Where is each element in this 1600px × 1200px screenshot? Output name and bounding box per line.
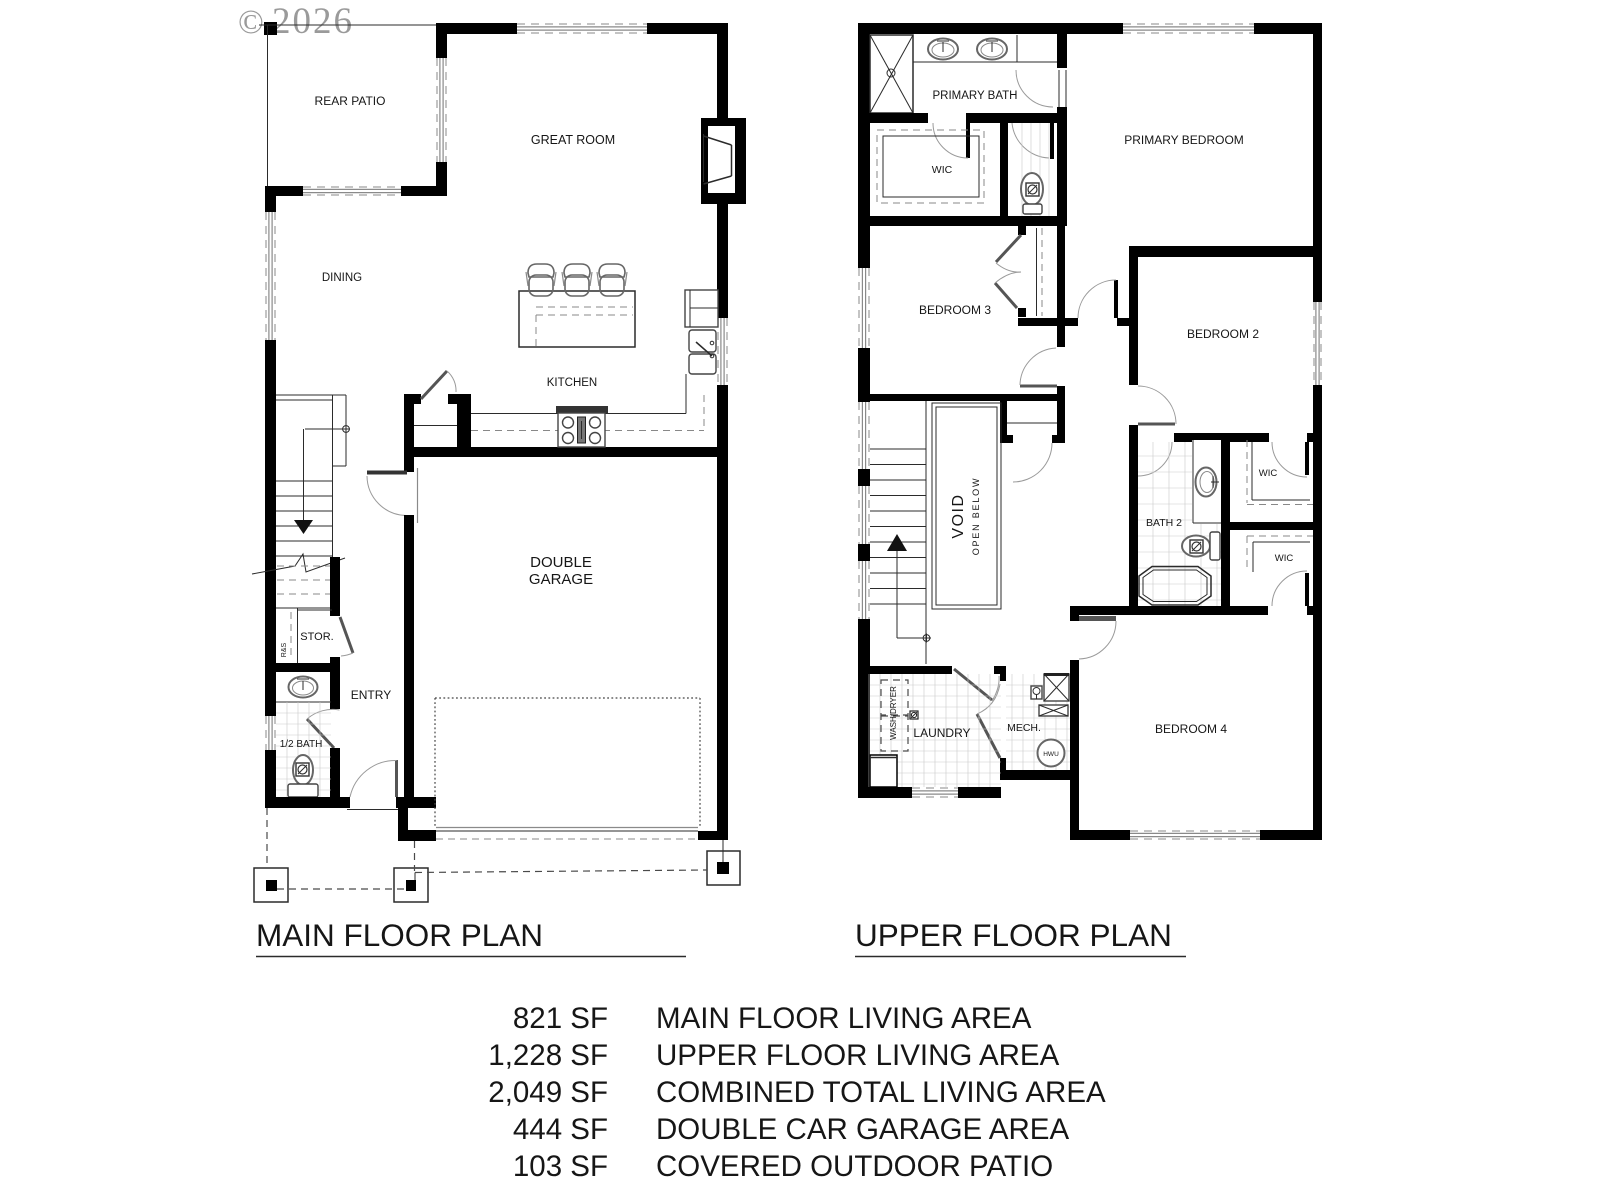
svg-text:BEDROOM 4: BEDROOM 4 [1155,722,1227,736]
svg-text:821 SF: 821 SF [513,1002,608,1035]
svg-text:GARAGE: GARAGE [529,571,593,588]
svg-text:DOUBLE CAR GARAGE AREA: DOUBLE CAR GARAGE AREA [656,1113,1069,1146]
svg-text:HWU: HWU [1043,751,1059,758]
svg-text:UPPER FLOOR PLAN: UPPER FLOOR PLAN [855,917,1172,953]
svg-text:OPEN BELOW: OPEN BELOW [971,477,981,556]
svg-text:REAR PATIO: REAR PATIO [315,94,386,108]
svg-text:PRIMARY BEDROOM: PRIMARY BEDROOM [1124,133,1244,147]
svg-text:2,049 SF: 2,049 SF [488,1076,608,1109]
svg-text:STOR.: STOR. [300,631,333,643]
svg-text:MAIN FLOOR LIVING AREA: MAIN FLOOR LIVING AREA [656,1002,1032,1035]
svg-text:ENTRY: ENTRY [351,688,391,702]
svg-text:COVERED OUTDOOR PATIO: COVERED OUTDOOR PATIO [656,1150,1053,1183]
svg-text:BEDROOM 3: BEDROOM 3 [919,303,991,317]
svg-text:DINING: DINING [322,272,362,284]
svg-text:WIC: WIC [932,164,953,176]
svg-text:DOUBLE: DOUBLE [530,554,592,571]
svg-text:LAUNDRY: LAUNDRY [913,726,970,740]
svg-text:WIC: WIC [1275,553,1294,564]
svg-text:1/2 BATH: 1/2 BATH [280,739,323,750]
svg-text:MECH.: MECH. [1007,722,1041,734]
svg-text:BATH 2: BATH 2 [1146,517,1182,529]
svg-text:R&S: R&S [281,642,288,657]
svg-text:VOID: VOID [950,493,967,538]
svg-text:UPPER FLOOR LIVING AREA: UPPER FLOOR LIVING AREA [656,1039,1060,1072]
svg-text:WASH/DRYER: WASH/DRYER [889,686,898,740]
svg-text:BEDROOM 2: BEDROOM 2 [1187,327,1259,341]
svg-text:103 SF: 103 SF [513,1150,608,1183]
svg-text:444 SF: 444 SF [513,1113,608,1146]
svg-text:KITCHEN: KITCHEN [547,377,597,389]
svg-text:2026: 2026 [272,1,354,42]
svg-text:COMBINED TOTAL LIVING AREA: COMBINED TOTAL LIVING AREA [656,1076,1106,1109]
svg-text:MAIN FLOOR PLAN: MAIN FLOOR PLAN [256,917,543,953]
svg-text:1,228 SF: 1,228 SF [488,1039,608,1072]
svg-text:©: © [238,4,264,41]
svg-text:GREAT ROOM: GREAT ROOM [531,133,615,147]
svg-text:PRIMARY BATH: PRIMARY BATH [933,90,1018,102]
svg-text:WIC: WIC [1259,468,1278,479]
